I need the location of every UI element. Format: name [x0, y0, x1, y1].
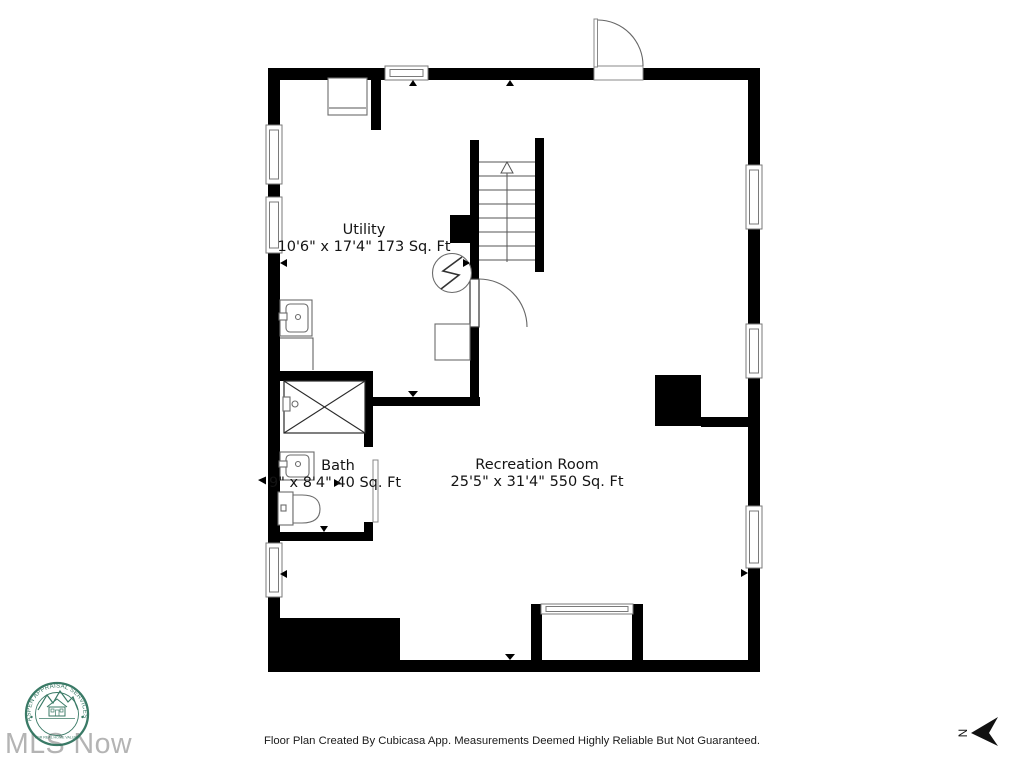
door-sill [594, 66, 643, 80]
chimney-block [655, 375, 701, 426]
window [746, 324, 762, 378]
floor-plan-drawing: MLS Now ASPEN APPRAISAL SERVICES FOR REA… [0, 0, 1024, 768]
stairs-up-arrow [501, 162, 513, 262]
window [266, 125, 282, 184]
tick-mark [505, 654, 515, 660]
bath-bottom-wall [268, 532, 373, 541]
door-leaf [594, 19, 598, 67]
shower-valve [283, 397, 290, 411]
north-letter: N [956, 729, 970, 738]
wall-segment [268, 184, 280, 197]
stamp-dot [30, 716, 32, 718]
wall-segment [643, 68, 760, 80]
bath-room-label: Bath [321, 458, 355, 475]
window [385, 66, 428, 80]
window [746, 165, 762, 229]
shower-icon [283, 381, 365, 433]
wall-stub [371, 68, 381, 130]
utility-room-label: Utility [343, 222, 386, 239]
window-well-window [541, 604, 633, 614]
wall-segment [701, 417, 748, 427]
wall-segment [748, 229, 760, 324]
bath-room-dimensions: 9" x 8'4" 40 Sq. Ft [269, 475, 401, 492]
wall-stub [450, 215, 470, 243]
tick-mark [320, 526, 328, 532]
utility-room-dimensions: 10'6" x 17'4" 173 Sq. Ft [277, 239, 450, 256]
stairs-icon [479, 162, 535, 262]
stair-left-wall [470, 140, 479, 279]
under-stair-solid-mass [268, 618, 400, 660]
tick-mark [408, 391, 418, 397]
tick-mark [280, 259, 287, 267]
stair-left-wall [470, 327, 479, 397]
wall-segment [268, 68, 280, 125]
wall-segment [268, 253, 280, 371]
window [746, 506, 762, 568]
recreation-room-label: Recreation Room [475, 457, 598, 474]
cubicasa-disclaimer: Floor Plan Created By Cubicasa App. Meas… [264, 735, 760, 747]
window-well-stub [632, 604, 643, 660]
door-swing-arc [598, 20, 643, 66]
tick-mark [741, 569, 748, 577]
walls [268, 68, 760, 672]
door-swing-arc [479, 279, 527, 327]
tick-mark [409, 80, 417, 86]
door-leaf [470, 279, 479, 327]
window [266, 543, 282, 597]
stamp-mountains-house-art [38, 691, 78, 719]
wall-segment [268, 660, 760, 672]
window-well-stub [531, 604, 542, 660]
shower-drain [292, 401, 298, 407]
measure-ticks [258, 80, 748, 660]
appraisal-stamp-logo: ASPEN APPRAISAL SERVICES FOR REAL HOME V… [25, 682, 88, 745]
tick-mark [506, 80, 514, 86]
windows [266, 66, 762, 614]
stamp-ring-bottom-text: FOR REAL HOME VALUES [35, 736, 80, 740]
wall-segment [428, 68, 594, 80]
recreation-room-dimensions: 25'5" x 31'4" 550 Sq. Ft [450, 474, 623, 491]
wall-segment [748, 68, 760, 165]
wall-segment [748, 378, 760, 506]
utility-rec-wall [364, 397, 480, 406]
wall-segment [268, 68, 386, 80]
utility-sink-icon [279, 300, 313, 370]
floor-plan-page: MLS Now ASPEN APPRAISAL SERVICES FOR REA… [0, 0, 1024, 768]
electrical-panel-icon [433, 254, 472, 293]
counter-edge [280, 338, 313, 370]
bath-top-wall [268, 371, 373, 381]
north-arrow-icon: N [956, 717, 998, 746]
toilet-icon [278, 492, 320, 525]
dimension-arrow-left [258, 477, 266, 485]
utility-door [470, 279, 527, 327]
stair-right-wall [535, 138, 544, 272]
appliance-box [328, 78, 367, 115]
stamp-dot [81, 716, 83, 718]
utility-fixture-box [435, 324, 470, 360]
entry-door [594, 19, 643, 80]
wall-segment [748, 568, 760, 672]
